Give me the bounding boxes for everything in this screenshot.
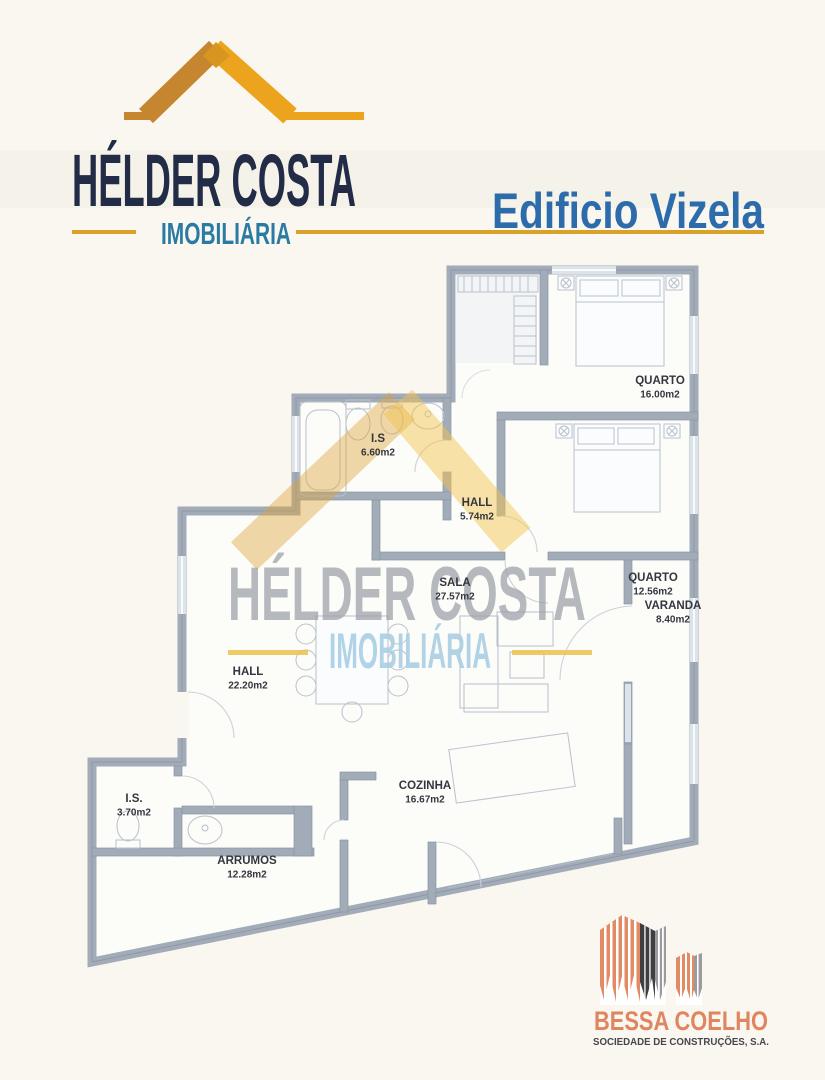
room-area-label: 22.20m2	[228, 681, 268, 692]
room-area-label: 12.56m2	[633, 587, 673, 598]
room-name-label: I.S.	[125, 793, 142, 805]
builder-subtitle: SOCIEDADE DE CONSTRUÇÕES, S.A.	[593, 1035, 769, 1048]
room-name-label: I.S	[371, 433, 385, 445]
room-name-label: HALL	[233, 666, 264, 678]
room-name-label: COZINHA	[399, 780, 451, 792]
watermark-line2: IMOBILIÁRIA	[329, 623, 491, 679]
room-name-label: VARANDA	[645, 600, 702, 612]
room-area-label: 6.60m2	[361, 448, 395, 459]
room-area-label: 27.57m2	[435, 592, 475, 603]
room-area-label: 12.28m2	[227, 870, 267, 881]
bed-quarto-16	[558, 276, 682, 366]
room-name-label: HALL	[462, 497, 493, 509]
room-area-label: 16.00m2	[640, 390, 680, 401]
watermark-rule-left	[228, 650, 308, 655]
room-area-label: 5.74m2	[460, 512, 494, 523]
builder-name: BESSA COELHO	[594, 1006, 768, 1036]
room-name-label: ARRUMOS	[217, 855, 277, 867]
flyer-canvas: HÉLDER COSTA IMOBILIÁRIA Edificio Vizela	[0, 0, 825, 1080]
room-area-label: 3.70m2	[117, 808, 151, 819]
tagline-rule-left	[72, 230, 136, 234]
agency-name: HÉLDER COSTA	[72, 139, 356, 222]
room-area-label: 8.40m2	[656, 615, 690, 626]
flyer-page: HÉLDER COSTA IMOBILIÁRIA Edificio Vizela	[0, 0, 825, 1080]
watermark-rule-right	[512, 650, 592, 655]
agency-tagline: IMOBILIÁRIA	[161, 216, 291, 251]
room-name-label: QUARTO	[635, 375, 685, 387]
entrance-gap	[175, 692, 189, 738]
building-title-text: Edificio Vizela	[492, 183, 765, 239]
building-title: Edificio Vizela	[492, 183, 765, 239]
room-area-label: 16.67m2	[405, 795, 445, 806]
room-name-label: SALA	[439, 577, 470, 589]
room-name-label: QUARTO	[628, 572, 678, 584]
